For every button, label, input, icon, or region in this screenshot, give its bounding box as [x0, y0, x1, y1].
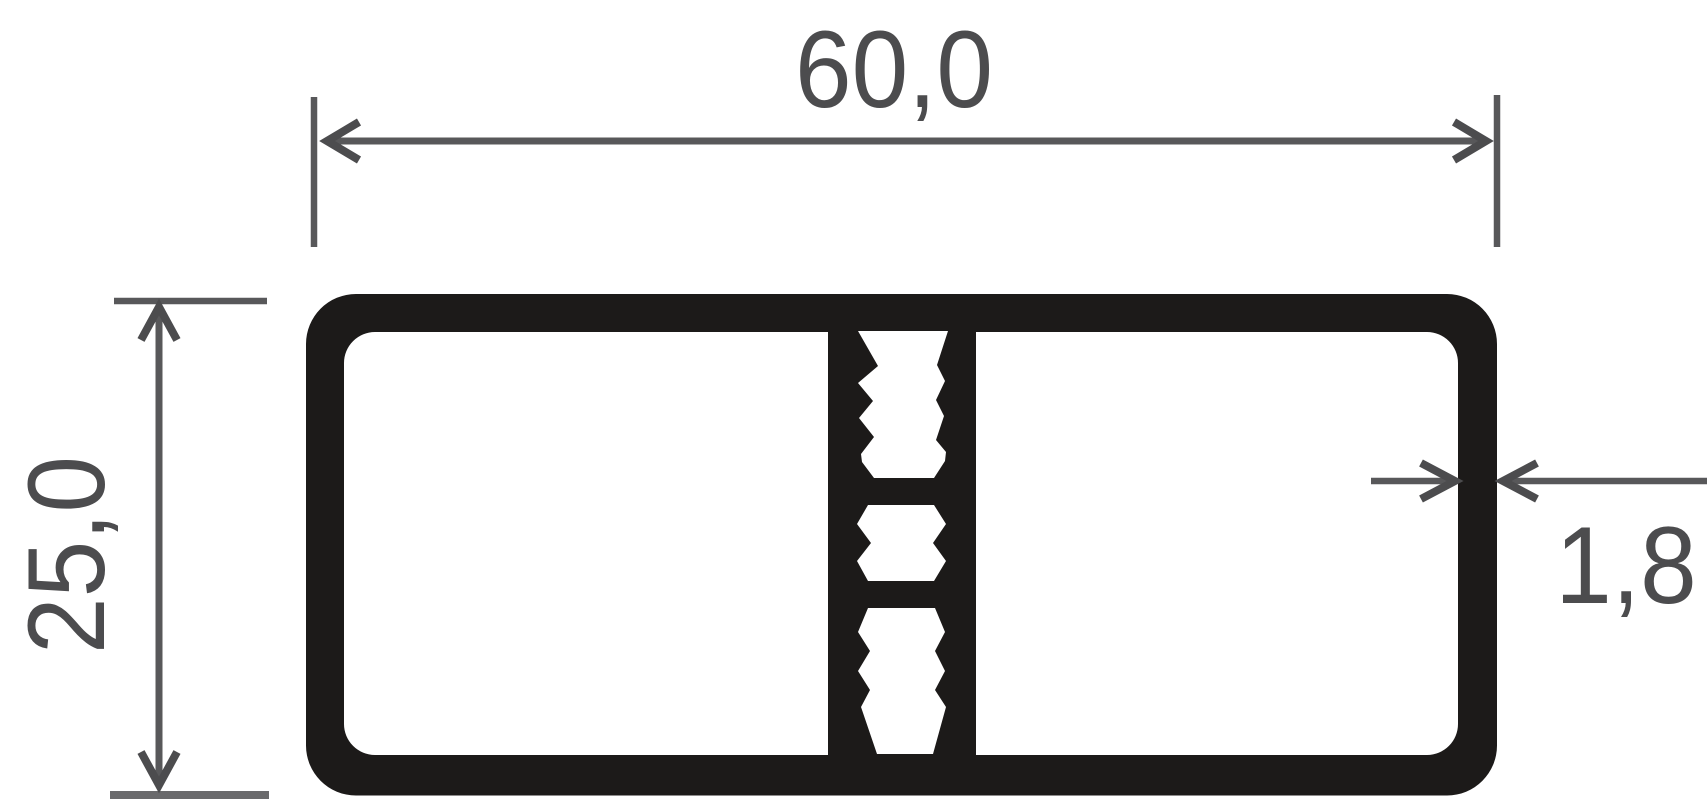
- svg-text:25,0: 25,0: [5, 456, 128, 654]
- svg-text:1,8: 1,8: [1555, 504, 1696, 627]
- svg-text:60,0: 60,0: [795, 8, 993, 131]
